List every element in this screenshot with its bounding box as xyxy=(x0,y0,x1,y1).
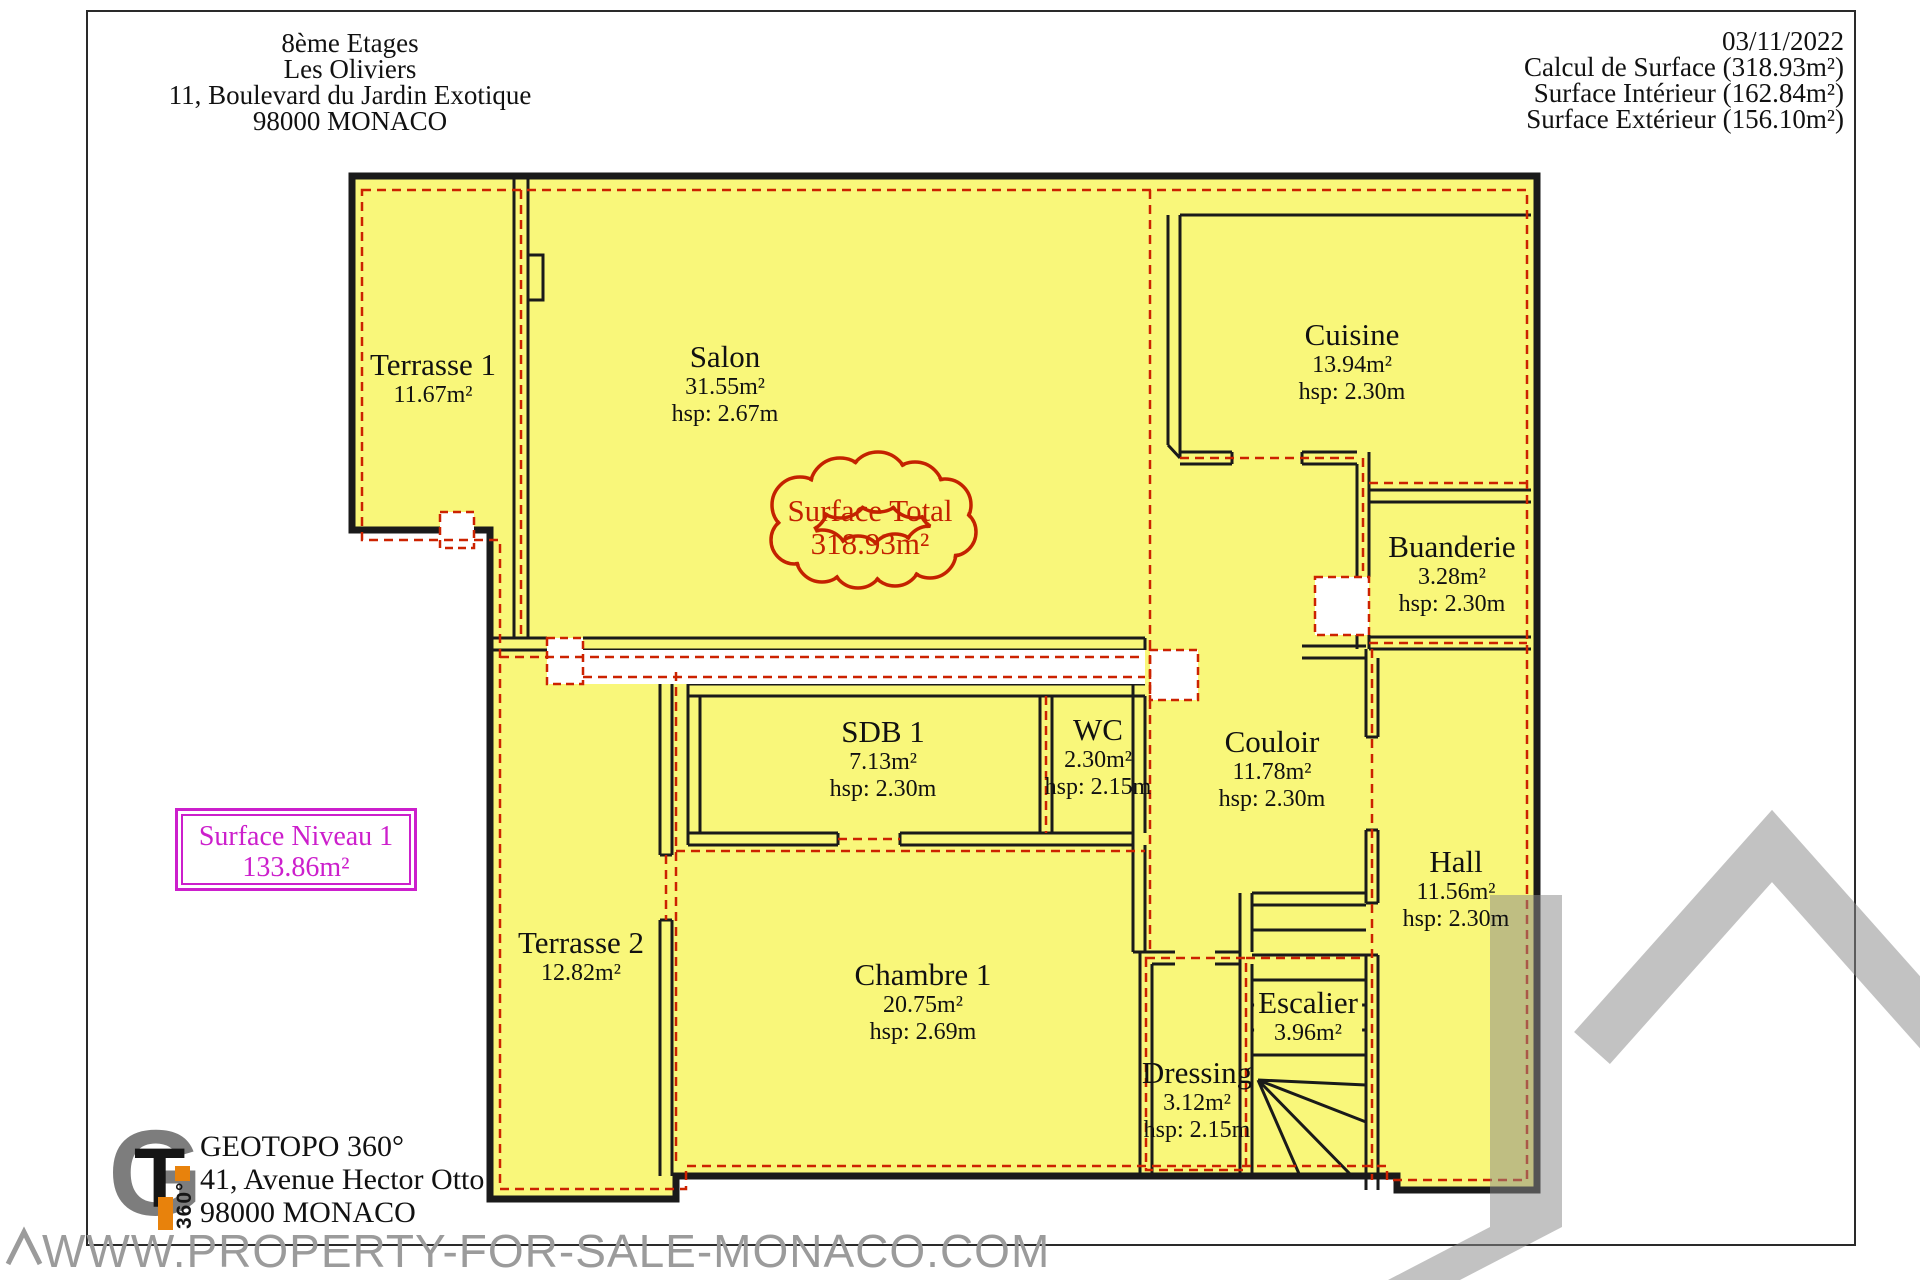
room-label-cuisine: Cuisine 13.94m² hsp: 2.30m xyxy=(1299,318,1406,406)
room-name: Terrasse 2 xyxy=(518,926,644,960)
room-area: 11.78m² xyxy=(1219,759,1326,786)
room-name: Chambre 1 xyxy=(855,958,992,992)
calc-surface-line: Calcul de Surface (318.93m²) xyxy=(1284,54,1844,80)
room-label-sdb1: SDB 1 7.13m² hsp: 2.30m xyxy=(830,715,937,803)
geotopo-logo-360: 360° xyxy=(173,1177,197,1229)
corridor-gap xyxy=(583,650,1145,684)
room-hsp: hsp: 2.30m xyxy=(1299,379,1406,406)
room-hsp: hsp: 2.67m xyxy=(672,401,779,428)
surface-interieur-line: Surface Intérieur (162.84m²) xyxy=(1284,80,1844,106)
room-hsp: hsp: 2.30m xyxy=(1219,786,1326,813)
building-line: Les Oliviers xyxy=(120,56,580,82)
room-area: 31.55m² xyxy=(672,374,779,401)
room-label-terrasse2: Terrasse 2 12.82m² xyxy=(518,926,644,987)
surveyor-company: GEOTOPO 360° xyxy=(200,1130,484,1163)
room-label-salon: Salon 31.55m² hsp: 2.67m xyxy=(672,340,779,428)
room-label-wc: WC 2.30m² hsp: 2.15m xyxy=(1045,713,1152,801)
room-hsp: hsp: 2.15m xyxy=(1045,774,1152,801)
room-name: Hall xyxy=(1403,845,1510,879)
room-hsp: hsp: 2.30m xyxy=(1403,906,1510,933)
city-line: 98000 MONACO xyxy=(120,108,580,134)
room-label-terrasse1: Terrasse 1 11.67m² xyxy=(370,348,496,409)
room-hsp: hsp: 2.30m xyxy=(1388,591,1515,618)
room-label-chambre1: Chambre 1 20.75m² hsp: 2.69m xyxy=(855,958,992,1046)
room-area: 3.96m² xyxy=(1254,1020,1362,1047)
room-name: WC xyxy=(1045,713,1152,747)
surveyor-address-block: GEOTOPO 360° 41, Avenue Hector Otto 9800… xyxy=(200,1130,484,1229)
surface-total-title: Surface Total xyxy=(787,494,952,527)
room-name: Escalier xyxy=(1254,986,1362,1020)
room-name: Terrasse 1 xyxy=(370,348,496,382)
property-address-block: 8ème Etages Les Oliviers 11, Boulevard d… xyxy=(120,30,580,134)
surface-niveau-value: 133.86m² xyxy=(183,852,409,883)
room-area: 11.67m² xyxy=(370,382,496,409)
surface-niveau-title: Surface Niveau 1 xyxy=(183,821,409,852)
room-area: 12.82m² xyxy=(518,960,644,987)
room-area: 13.94m² xyxy=(1299,352,1406,379)
surface-niveau-badge: Surface Niveau 1 133.86m² xyxy=(175,808,417,891)
room-label-escalier: Escalier 3.96m² xyxy=(1254,986,1362,1047)
room-area: 3.28m² xyxy=(1388,564,1515,591)
room-label-dressing: Dressing 3.12m² hsp: 2.15m xyxy=(1142,1056,1252,1144)
room-label-couloir: Couloir 11.78m² hsp: 2.30m xyxy=(1219,725,1326,813)
room-hsp: hsp: 2.69m xyxy=(855,1019,992,1046)
surface-total-value: 318.93m² xyxy=(787,527,952,560)
surveyor-street: 41, Avenue Hector Otto xyxy=(200,1163,484,1196)
floor-plan-svg xyxy=(0,0,1920,1280)
date-line: 03/11/2022 xyxy=(1284,28,1844,54)
room-area: 7.13m² xyxy=(830,749,937,776)
room-area: 20.75m² xyxy=(855,992,992,1019)
room-name: Cuisine xyxy=(1299,318,1406,352)
surface-exterieur-line: Surface Extérieur (156.10m²) xyxy=(1284,106,1844,132)
surface-summary-block: 03/11/2022 Calcul de Surface (318.93m²) … xyxy=(1284,28,1844,132)
street-line: 11, Boulevard du Jardin Exotique xyxy=(120,82,580,108)
room-name: Salon xyxy=(672,340,779,374)
room-area: 11.56m² xyxy=(1403,879,1510,906)
room-area: 3.12m² xyxy=(1142,1090,1252,1117)
floor-plan-page: 8ème Etages Les Oliviers 11, Boulevard d… xyxy=(0,0,1920,1280)
room-name: Dressing xyxy=(1142,1056,1252,1090)
floor-line: 8ème Etages xyxy=(120,30,580,56)
watermark-url: WWW.PROPERTY-FOR-SALE-MONACO.COM xyxy=(42,1224,1050,1278)
surface-niveau-inner: Surface Niveau 1 133.86m² xyxy=(181,814,411,885)
surface-total-badge: Surface Total 318.93m² xyxy=(787,494,952,560)
room-label-hall: Hall 11.56m² hsp: 2.30m xyxy=(1403,845,1510,933)
room-name: Buanderie xyxy=(1388,530,1515,564)
room-area: 2.30m² xyxy=(1045,747,1152,774)
room-name: Couloir xyxy=(1219,725,1326,759)
room-hsp: hsp: 2.15m xyxy=(1142,1117,1252,1144)
room-hsp: hsp: 2.30m xyxy=(830,776,937,803)
room-label-buanderie: Buanderie 3.28m² hsp: 2.30m xyxy=(1388,530,1515,618)
room-name: SDB 1 xyxy=(830,715,937,749)
